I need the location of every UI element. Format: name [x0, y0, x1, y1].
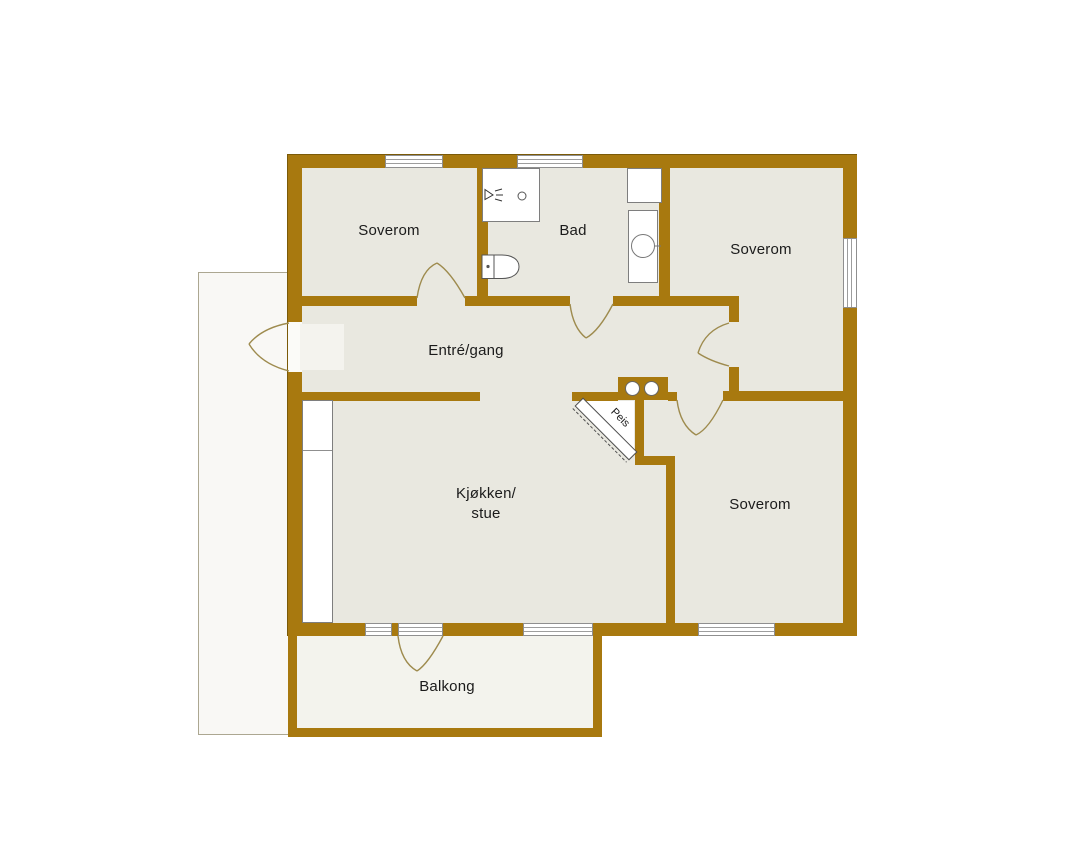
door-swing-entrance [249, 323, 289, 371]
washbasin-icon [632, 235, 662, 258]
room-label-bedroom1: Soverom [358, 221, 419, 241]
chimney-flues-icon [626, 382, 659, 396]
door-swing-bedroom2 [698, 323, 729, 366]
door-swing-bathroom [570, 304, 613, 338]
room-label-kitchen-living: Kjøkken/ stue [456, 484, 516, 525]
floor-plan: Peis Soverom B [0, 0, 1092, 862]
door-swing-bedroom3 [677, 400, 723, 435]
shower-head-icon [485, 189, 503, 201]
room-label-bedroom2: Soverom [730, 240, 791, 260]
fireplace-icon: Peis [573, 398, 637, 462]
plan-symbols: Peis [0, 0, 1092, 862]
door-swing-balcony [398, 636, 443, 671]
room-label-bedroom3: Soverom [729, 495, 790, 515]
room-label-hallway: Entré/gang [428, 341, 503, 361]
shower-drain-icon [518, 192, 526, 200]
door-swing-bedroom1 [417, 263, 465, 298]
toilet-icon [482, 255, 519, 279]
room-label-bathroom: Bad [559, 221, 586, 241]
room-label-balcony: Balkong [419, 677, 475, 697]
